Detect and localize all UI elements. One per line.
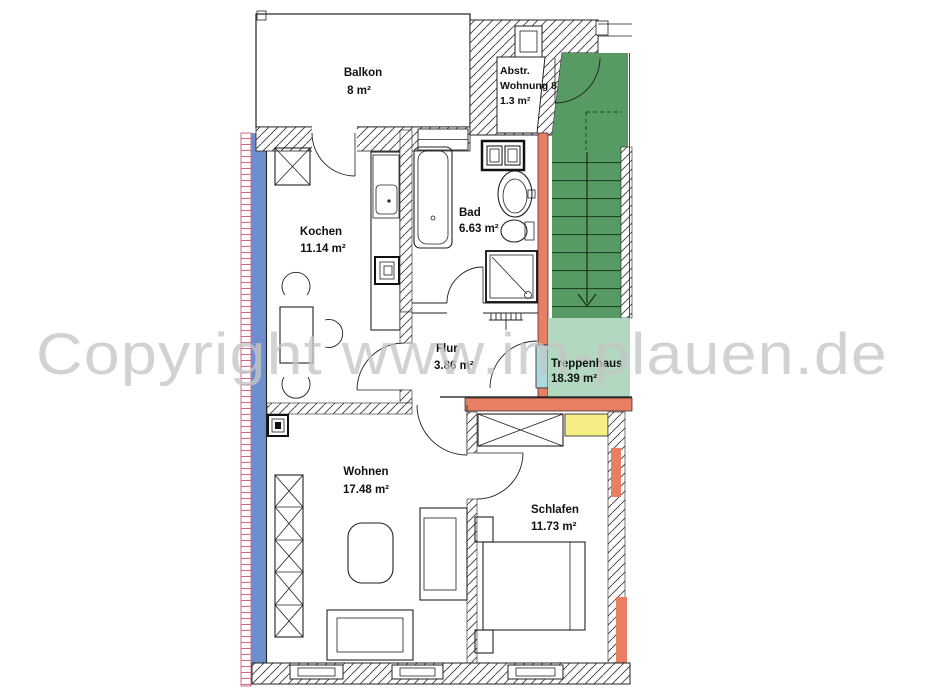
schlafen-window-yellow xyxy=(565,414,608,436)
room-area-balkon: 8 m² xyxy=(347,85,371,97)
room-area-schlafen: 11.73 m² xyxy=(531,521,577,533)
bathtub-inner xyxy=(418,151,448,244)
stove-icon xyxy=(375,257,399,284)
hall-wall-salmon xyxy=(465,398,632,411)
wall-notch xyxy=(596,21,608,35)
armchair-seat xyxy=(424,518,456,590)
kitchen-sink-icon xyxy=(376,185,397,214)
schlafen-door-arc-icon xyxy=(477,453,523,499)
stair-wall-salmon xyxy=(538,133,548,345)
window-icon xyxy=(392,665,443,679)
sofa-seat xyxy=(337,618,403,652)
room-schlafen: Schlafen 11.73 m² xyxy=(475,412,627,665)
room-area-wohnen: 17.48 m² xyxy=(343,484,389,496)
flur-wohnen-door-arc-icon xyxy=(417,405,467,455)
room-label-abstellraum-1: Abstr. xyxy=(500,65,530,77)
window-icon xyxy=(508,665,563,679)
window-icon xyxy=(290,665,343,679)
shelf-icon xyxy=(275,475,303,637)
bathtub-drain xyxy=(431,216,435,220)
wall-kochen-wohnen xyxy=(267,403,412,414)
room-area-kochen: 11.14 m² xyxy=(300,243,346,255)
sofa-icon xyxy=(327,610,413,660)
room-label-bad: Bad xyxy=(459,207,481,219)
floorplan-page: Balkon 8 m² Abstr. Wohnung 8 1.3 m² xyxy=(0,0,933,700)
exterior-wall-blue xyxy=(251,133,266,665)
bathtub-icon xyxy=(414,147,452,248)
toilet-tank xyxy=(525,222,534,240)
wall-kochen-flur xyxy=(400,390,412,403)
copyright-watermark: Copyright www.im-plauen.de xyxy=(36,322,888,387)
nightstand-icon xyxy=(475,517,493,542)
junction-box-core xyxy=(275,422,281,429)
balcony-door-opening xyxy=(312,126,357,152)
wall-bottom xyxy=(252,663,630,684)
bathroom-sink-basin xyxy=(503,179,527,213)
washer-dryer-icon xyxy=(482,141,524,170)
room-area-abstellraum: 1.3 m² xyxy=(500,95,531,107)
wall-kochen-bad xyxy=(400,130,412,312)
nightstand-icon xyxy=(475,630,493,653)
stairs-side-wall xyxy=(621,147,632,318)
exterior-insulation-strip xyxy=(241,133,251,686)
room-bad: Bad 6.63 m² xyxy=(414,141,537,303)
right-wall-salmon xyxy=(616,597,627,663)
staircase xyxy=(552,53,632,318)
bad-door-arc-icon xyxy=(447,267,483,303)
right-wall-salmon xyxy=(611,448,621,497)
chair-icon xyxy=(282,272,310,295)
room-balkon: Balkon 8 m² xyxy=(256,11,470,127)
sink-drain xyxy=(387,199,390,202)
toilet-icon xyxy=(501,220,527,242)
room-label-kochen: Kochen xyxy=(300,226,342,238)
room-label-abstellraum-2: Wohnung 8 xyxy=(500,80,557,92)
room-label-wohnen: Wohnen xyxy=(343,466,388,478)
wall-wohnen-schlafen xyxy=(467,412,477,453)
kitchen-counter-icon xyxy=(371,152,400,330)
room-label-balkon: Balkon xyxy=(344,67,382,79)
room-label-schlafen: Schlafen xyxy=(531,504,579,516)
room-area-bad: 6.63 m² xyxy=(459,223,499,235)
floorplan-drawing: Balkon 8 m² Abstr. Wohnung 8 1.3 m² xyxy=(0,0,933,700)
coffee-table-icon xyxy=(348,523,393,583)
room-wohnen: Wohnen 17.48 m² xyxy=(268,415,467,660)
armchair-icon xyxy=(420,508,467,600)
